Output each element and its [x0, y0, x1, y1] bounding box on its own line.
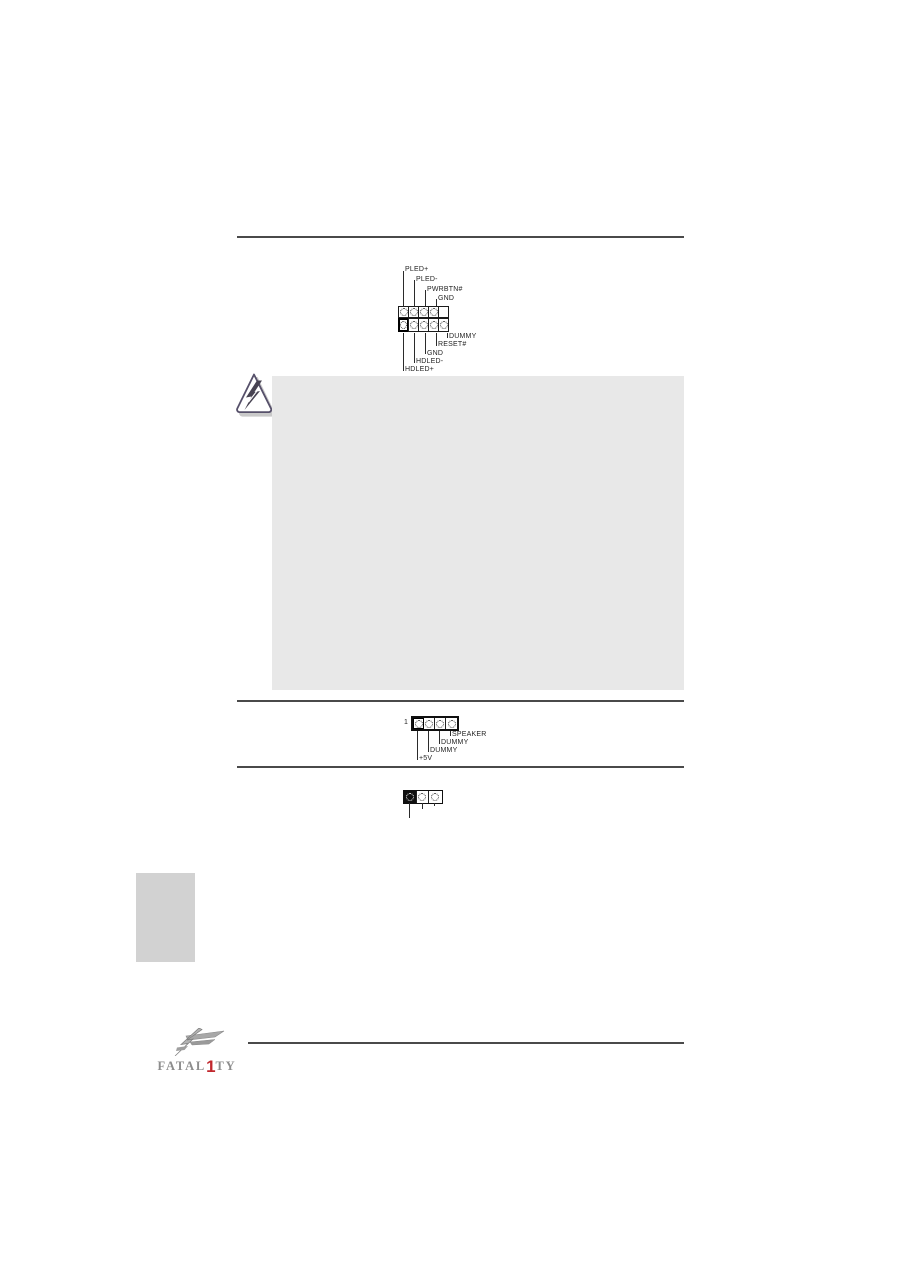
- pin-cell-empty: [438, 306, 449, 318]
- leader-line: [403, 271, 404, 307]
- pin-label-pled-plus: PLED+: [405, 266, 428, 273]
- pin-hole: [420, 321, 428, 329]
- fatality-logo-text: FATAL1TY: [148, 1057, 246, 1077]
- leader-line: [425, 290, 426, 307]
- leader-line: [425, 333, 426, 354]
- pin-hole: [431, 793, 439, 801]
- panel-header-bottom-row: [398, 318, 448, 332]
- pin-label-5v: +5V: [419, 755, 432, 762]
- pin-cell-pin1: [404, 791, 417, 803]
- pin-label-gnd-top: GND: [438, 295, 454, 302]
- leader-line: [450, 731, 451, 736]
- pin-number-label: 1: [404, 719, 408, 726]
- pin-label-pled-minus: PLED-: [416, 276, 438, 283]
- fatality-logo: FATAL1TY: [148, 1028, 246, 1077]
- logo-text-pre: FATAL: [157, 1059, 206, 1073]
- pin-hole: [440, 321, 448, 329]
- leader-line: [414, 280, 415, 307]
- fatality-emblem-icon: [168, 1028, 226, 1056]
- leader-line: [414, 333, 415, 363]
- pin-hole: [430, 308, 438, 316]
- pin-label-dummy: DUMMY: [430, 747, 457, 754]
- leader-line: [436, 333, 437, 346]
- pin-label-dummy: DUMMY: [449, 333, 476, 340]
- pin-hole: [420, 308, 428, 316]
- leader-line: [439, 731, 440, 744]
- sidebar-tab: [136, 873, 195, 962]
- pin-hole: [400, 308, 408, 316]
- leader-line: [434, 803, 435, 806]
- pin-hole: [425, 720, 433, 728]
- manual-page: PLED+ PLED- PWRBTN# GND DUMMY RESET# GN: [0, 0, 900, 1273]
- pin-hole: [430, 321, 438, 329]
- pin-hole: [410, 321, 418, 329]
- pin-label-dummy: DUMMY: [441, 739, 468, 746]
- leader-line: [403, 333, 404, 371]
- pin-cell: [417, 791, 430, 803]
- bottom-rule: [248, 1042, 684, 1044]
- pin-hole: [418, 793, 426, 801]
- pin-hole: [436, 720, 444, 728]
- leader-line: [409, 803, 410, 818]
- pin-label-pwrbtn: PWRBTN#: [427, 286, 463, 293]
- leader-line: [447, 333, 448, 338]
- pin-label-hdled-plus: HDLED+: [405, 366, 434, 373]
- pin-hole: [406, 793, 414, 801]
- leader-line: [428, 731, 429, 752]
- pin-label-gnd-bottom: GND: [427, 350, 443, 357]
- caution-box: [272, 376, 684, 690]
- pin-cell: [446, 718, 457, 729]
- pin-cell: [435, 718, 446, 729]
- pin-hole: [448, 720, 456, 728]
- leader-line: [417, 731, 418, 760]
- panel-header-top-row: [398, 306, 448, 318]
- speaker-header-box: [411, 716, 459, 731]
- warning-lightning-icon: [233, 371, 277, 428]
- logo-text-post: TY: [216, 1059, 237, 1073]
- pin-hole: [415, 720, 423, 728]
- top-rule: [237, 236, 684, 238]
- pin-cell: [429, 791, 442, 803]
- pin-label-speaker: SPEAKER: [452, 731, 486, 738]
- middle-rule-2: [237, 766, 684, 768]
- pin-cell: [424, 718, 435, 729]
- pin-cell: [438, 318, 449, 332]
- pin-hole: [400, 321, 407, 329]
- pin-hole: [410, 308, 418, 316]
- leader-line: [422, 803, 423, 809]
- pin-label-hdled-minus: HDLED-: [416, 358, 443, 365]
- logo-text-one: 1: [206, 1057, 215, 1076]
- pin-cell-pin1: [413, 718, 424, 729]
- pin-label-reset: RESET#: [438, 341, 466, 348]
- middle-rule-1: [237, 700, 684, 702]
- three-pin-header-box: [403, 790, 443, 804]
